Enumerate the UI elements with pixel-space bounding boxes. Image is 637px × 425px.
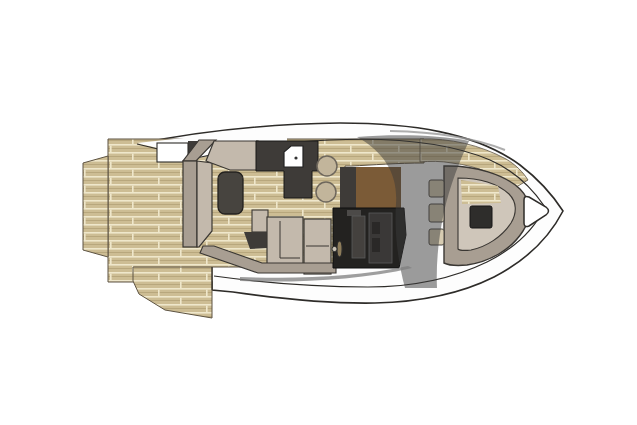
helm-console-screen bbox=[372, 238, 380, 252]
aft-bench-corner bbox=[252, 210, 268, 232]
transom-platform bbox=[83, 156, 108, 257]
deck-plan-figure bbox=[0, 0, 637, 425]
steering-wheel-icon bbox=[337, 241, 342, 257]
helm-charcoal-strip bbox=[340, 167, 357, 208]
bar-stool bbox=[317, 156, 337, 176]
sofa-seat-vertical bbox=[197, 161, 212, 247]
sink bbox=[284, 146, 303, 167]
sink-drain bbox=[294, 156, 297, 159]
steering-wheel-hub bbox=[332, 246, 337, 251]
helm-console-top bbox=[347, 210, 361, 216]
bow-hatch bbox=[470, 206, 492, 228]
cockpit-table bbox=[218, 172, 243, 214]
helm-console-screen bbox=[372, 222, 380, 234]
helm-console-panel bbox=[352, 216, 365, 258]
bar-stool bbox=[316, 182, 336, 202]
transom-seat bbox=[157, 143, 188, 162]
sofa-back-vertical bbox=[183, 161, 197, 247]
deck-plan-canvas bbox=[0, 0, 637, 425]
